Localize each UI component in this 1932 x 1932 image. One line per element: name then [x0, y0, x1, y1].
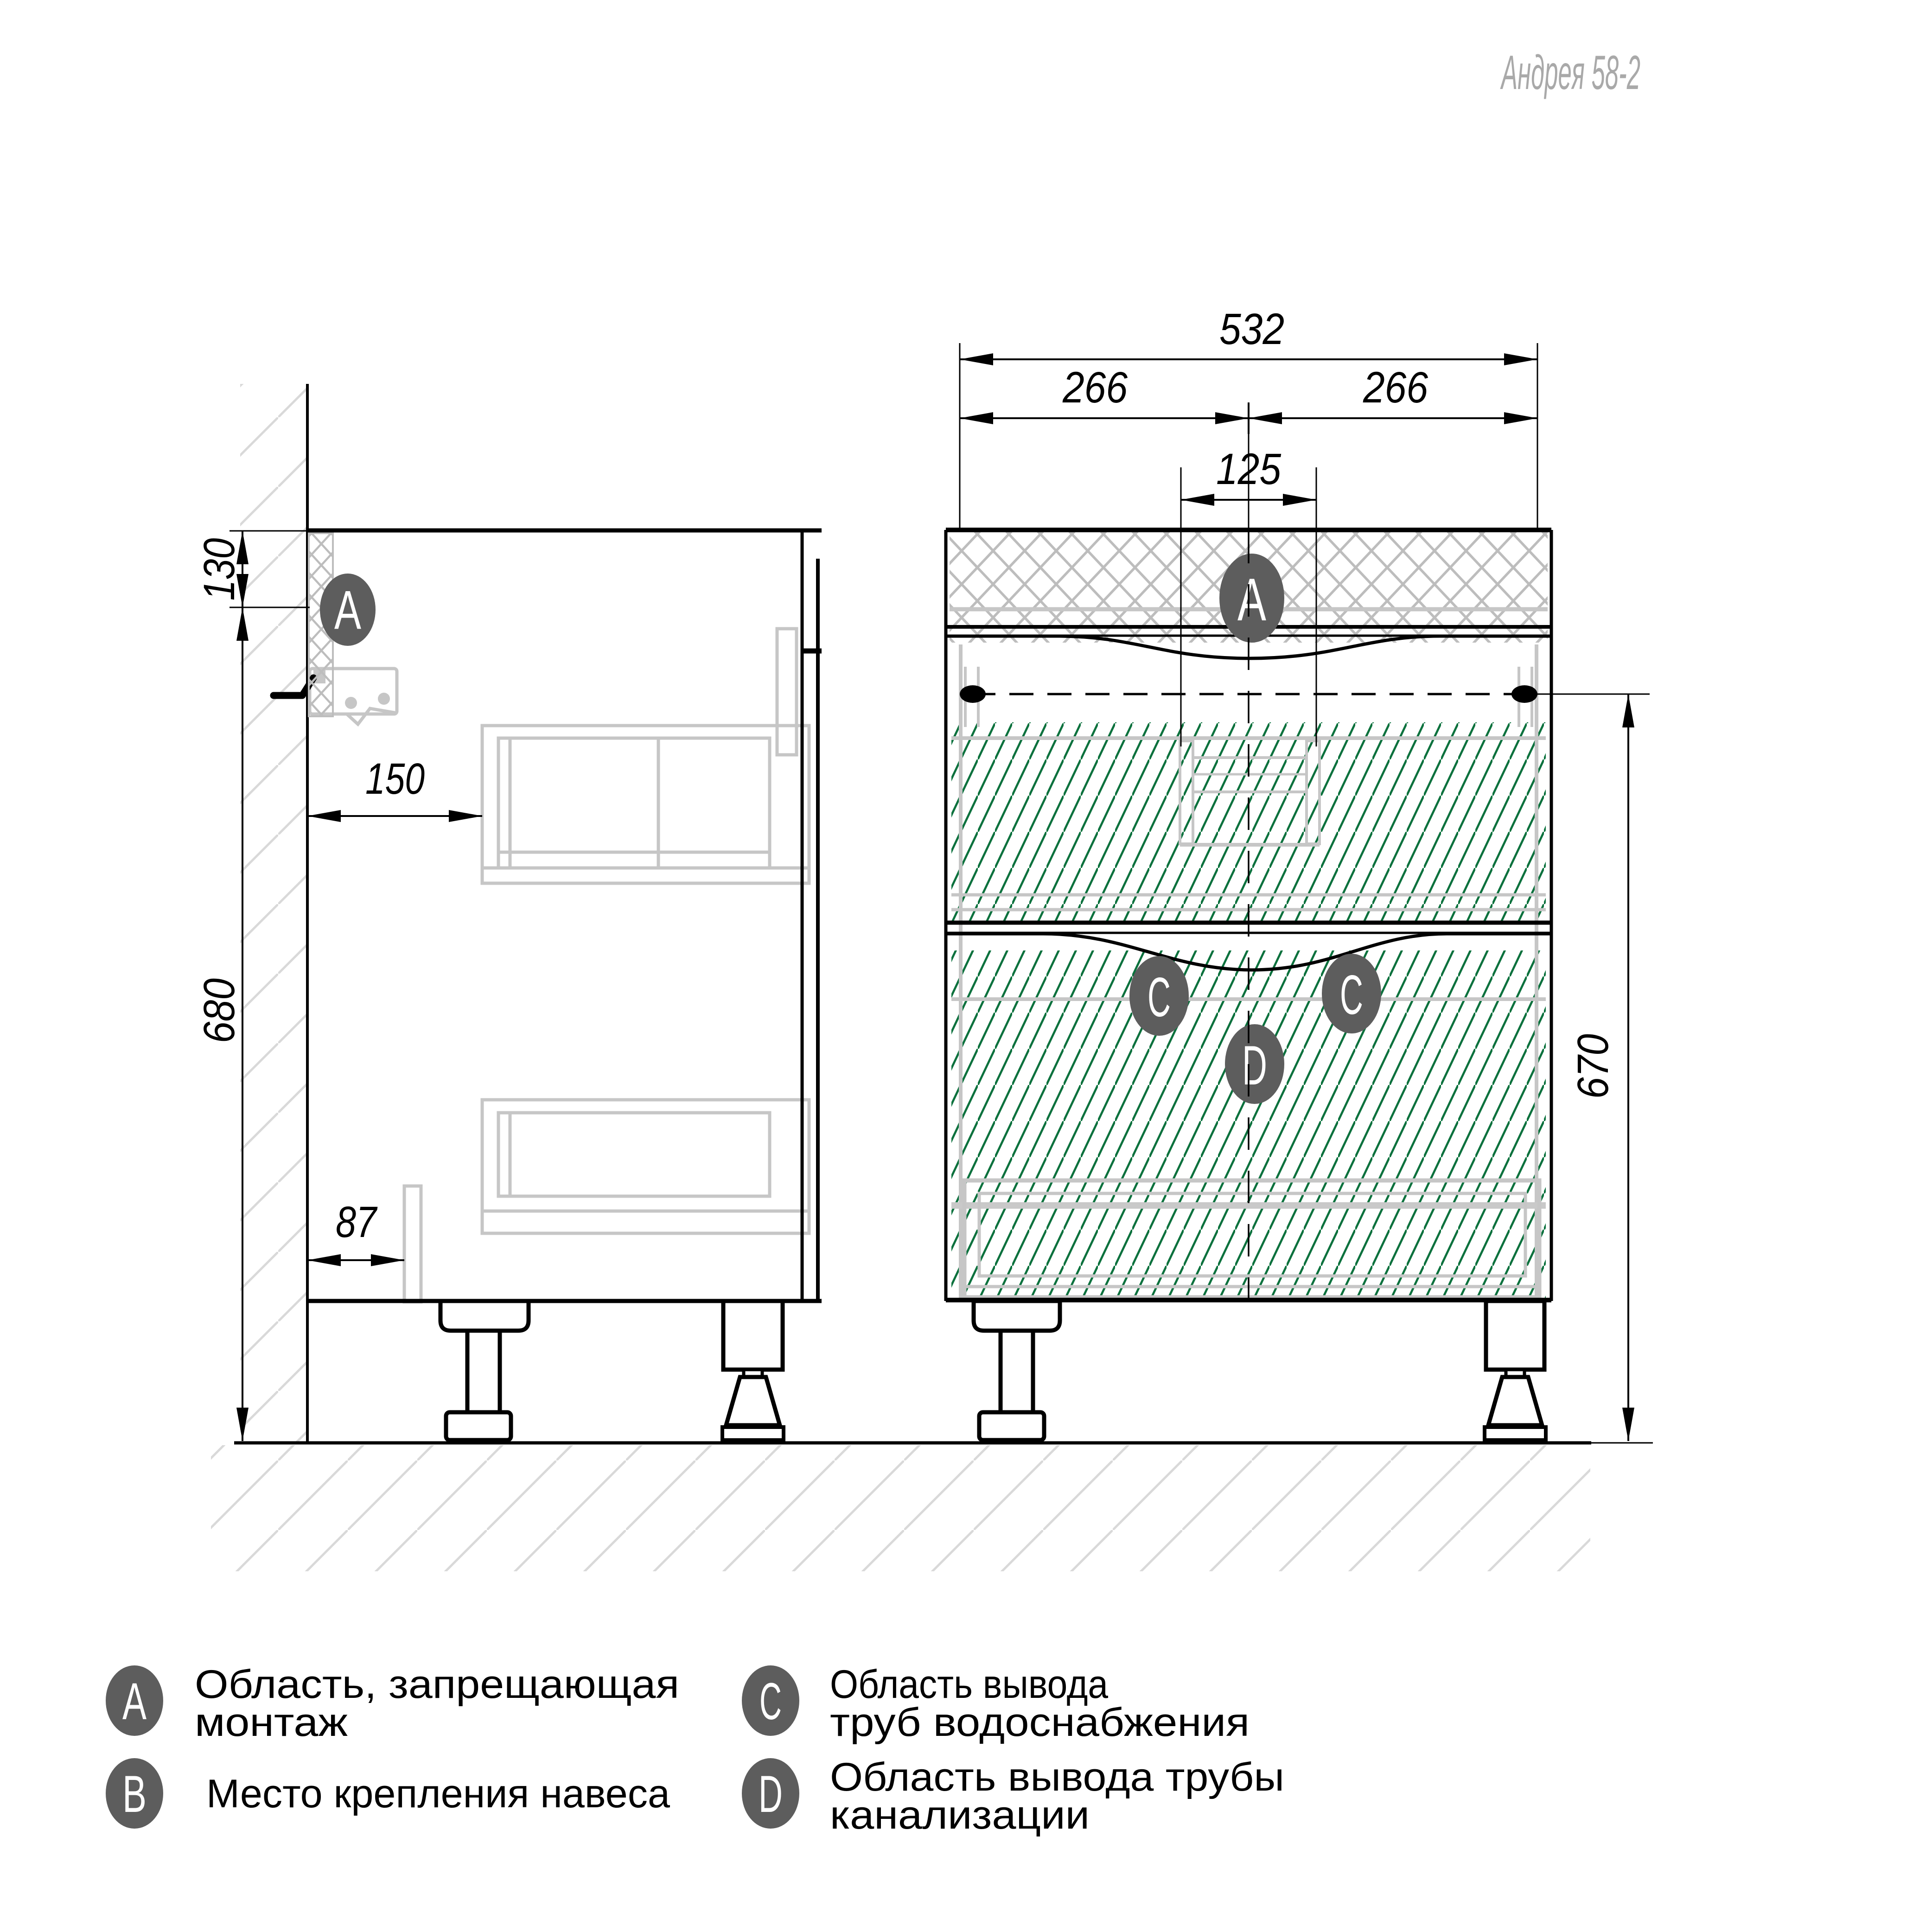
svg-text:87: 87 [336, 1198, 378, 1247]
svg-text:D: D [1242, 1034, 1267, 1097]
svg-text:монтаж: монтаж [195, 1700, 348, 1745]
drawing-title: Андрея 58-2 [1500, 46, 1640, 100]
svg-text:532: 532 [1219, 305, 1284, 354]
marker-d: D [1225, 1024, 1284, 1104]
side-legs [440, 1301, 784, 1440]
svg-text:D: D [759, 1765, 783, 1823]
svg-text:труб водоснабжения: труб водоснабжения [830, 1700, 1250, 1745]
svg-text:A: A [334, 580, 361, 641]
hanger-axis [960, 685, 1650, 703]
dim-150: 150 [307, 754, 482, 822]
legend-item-d: D Область вывода трубы канализации [742, 1755, 1284, 1837]
front-legs [974, 1301, 1546, 1440]
svg-text:670: 670 [1569, 1034, 1618, 1099]
svg-text:канализации: канализации [830, 1793, 1090, 1837]
svg-text:C: C [1340, 964, 1363, 1026]
svg-text:266: 266 [1363, 363, 1428, 412]
dim-532: 532 [960, 305, 1537, 365]
vanity-installation-diagram-page: Андрея 58-2 [0, 0, 1932, 1932]
svg-text:C: C [759, 1672, 782, 1730]
legend-item-c: C Область вывода труб водоснабжения [742, 1662, 1250, 1745]
side-internal-structure [404, 629, 809, 1302]
svg-text:150: 150 [365, 754, 425, 803]
legend-item-a: A Область, запрещающая монтаж [106, 1662, 679, 1745]
technical-drawing: Андрея 58-2 [0, 0, 1932, 1932]
fixing-dot-right [1511, 685, 1537, 703]
wall-section [240, 384, 307, 1443]
marker-c-right: C [1322, 954, 1381, 1033]
floor-hatch [211, 1445, 1590, 1571]
svg-text:266: 266 [1062, 363, 1128, 412]
svg-text:B: B [122, 1765, 147, 1823]
side-view: A [230, 530, 822, 1440]
marker-a-side: A [320, 574, 376, 646]
svg-text:C: C [1148, 966, 1171, 1028]
marker-c-left: C [1129, 956, 1189, 1036]
wall-hatch [240, 384, 307, 1443]
floor-section [211, 1443, 1653, 1571]
svg-text:A: A [1237, 566, 1266, 633]
legend-item-b: B Место крепления навеса [106, 1758, 670, 1829]
dim-266-266: 266 266 [960, 363, 1537, 434]
marker-a-front: A [1219, 554, 1284, 643]
fixing-dot-left [960, 685, 986, 703]
svg-text:130: 130 [195, 538, 244, 600]
svg-text:680: 680 [195, 978, 244, 1043]
svg-text:Место крепления навеса: Место крепления навеса [206, 1772, 670, 1816]
svg-text:A: A [122, 1672, 147, 1730]
legend: A Область, запрещающая монтаж B Место кр… [106, 1662, 1284, 1837]
dim-670: 670 [1569, 694, 1634, 1441]
svg-text:125: 125 [1216, 445, 1282, 494]
dim-87: 87 [307, 1198, 404, 1266]
front-view: A C C D [946, 530, 1650, 1440]
